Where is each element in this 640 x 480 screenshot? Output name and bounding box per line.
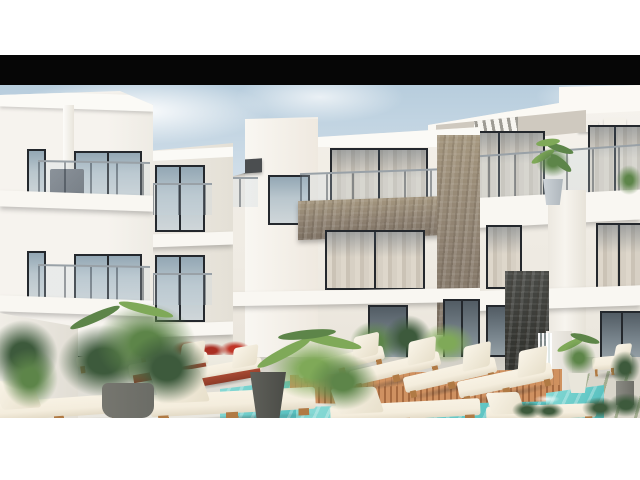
- plant-pot: [568, 373, 588, 393]
- tower-face: [245, 119, 318, 363]
- balcony-plant-right-edge: [616, 165, 640, 207]
- lower-window: [596, 223, 640, 289]
- bush-bottom-center: [512, 401, 564, 418]
- fan-palm-plant: [248, 328, 388, 418]
- palm-plant-right: [556, 331, 602, 395]
- plant-pot: [543, 179, 563, 205]
- floor-slab: [148, 232, 233, 248]
- page: [0, 0, 640, 480]
- plant-pot: [102, 383, 154, 418]
- letterbox-bar: [0, 55, 640, 85]
- plant-left-edge: [0, 320, 60, 418]
- property-render-image: [0, 85, 640, 418]
- bush-bottom-right: [582, 393, 640, 418]
- balcony-palm-plant: [528, 131, 576, 207]
- plant-pot-tall: [250, 372, 286, 418]
- balcony-glass-railing: [152, 273, 212, 305]
- palm-plant-left: [58, 303, 208, 418]
- balcony-glass-railing: [152, 183, 212, 215]
- lower-window: [325, 230, 425, 290]
